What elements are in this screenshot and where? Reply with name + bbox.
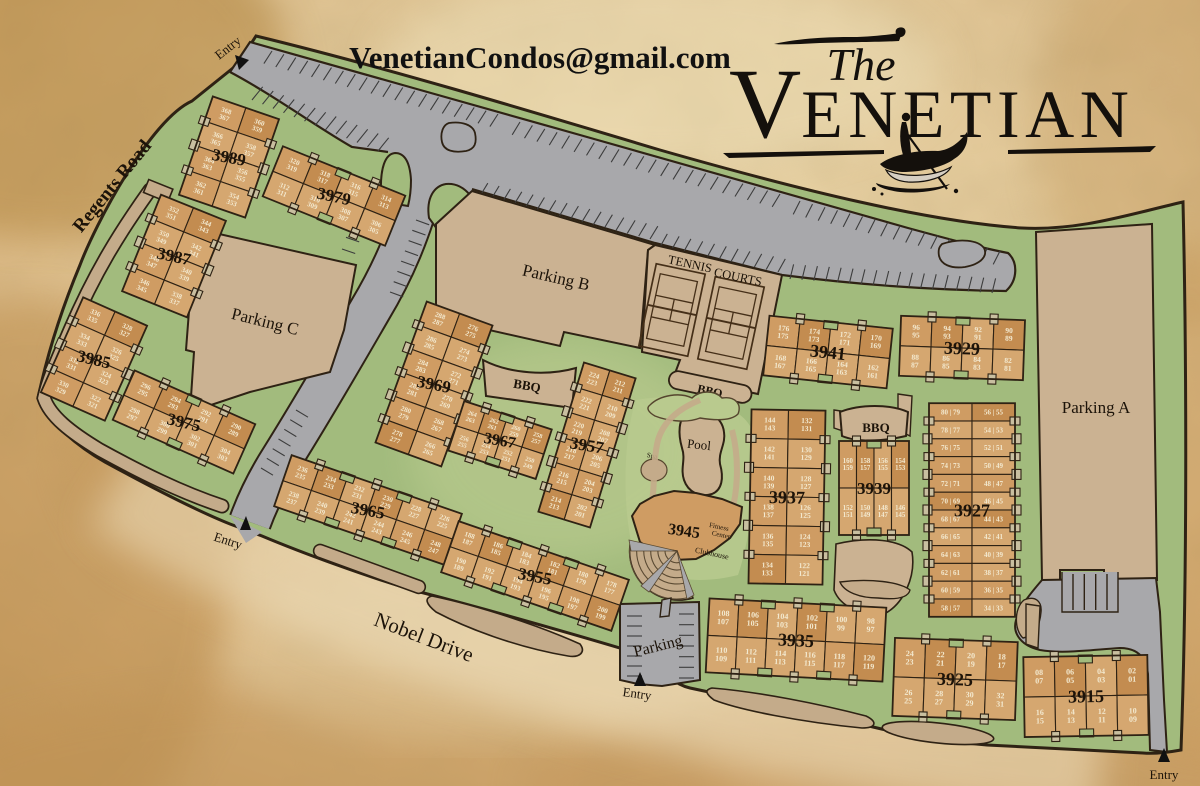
svg-text:05: 05 [1066,676,1074,685]
svg-text:153: 153 [895,465,906,472]
svg-text:Entry: Entry [1150,767,1179,782]
svg-text:137: 137 [762,510,774,519]
svg-text:52 | 51: 52 | 51 [984,444,1004,452]
svg-text:119: 119 [863,662,875,672]
svg-text:83: 83 [973,363,981,372]
svg-text:103: 103 [776,620,788,630]
svg-text:175: 175 [777,331,789,341]
svg-text:3941: 3941 [809,340,847,364]
svg-text:121: 121 [798,569,810,578]
svg-text:133: 133 [761,568,773,577]
svg-text:07: 07 [1035,676,1043,685]
svg-text:19: 19 [967,660,975,669]
svg-text:158: 158 [860,458,871,465]
svg-text:89: 89 [1005,334,1013,343]
svg-text:169: 169 [869,340,881,350]
svg-text:11: 11 [1098,715,1106,724]
svg-text:BBQ: BBQ [862,420,889,435]
svg-text:34 | 33: 34 | 33 [984,604,1004,612]
svg-text:146: 146 [895,505,906,512]
svg-text:160: 160 [843,458,854,465]
svg-text:155: 155 [878,465,889,472]
svg-text:151: 151 [843,512,854,519]
svg-text:72 | 71: 72 | 71 [941,480,961,488]
svg-text:159: 159 [843,465,854,472]
svg-text:13: 13 [1067,716,1075,725]
svg-text:36 | 35: 36 | 35 [984,587,1004,595]
svg-text:145: 145 [895,512,906,519]
svg-text:117: 117 [833,660,845,670]
svg-text:150: 150 [860,505,871,512]
svg-text:113: 113 [774,657,786,667]
svg-text:25: 25 [904,696,912,705]
svg-text:149: 149 [860,512,871,519]
svg-text:23: 23 [905,657,913,666]
svg-text:56 | 55: 56 | 55 [984,409,1004,417]
svg-text:38 | 37: 38 | 37 [984,569,1004,577]
svg-text:152: 152 [843,505,854,512]
svg-text:3925: 3925 [937,669,974,690]
svg-text:163: 163 [835,367,847,377]
svg-text:147: 147 [878,512,889,519]
svg-text:17: 17 [997,661,1005,670]
svg-text:167: 167 [774,361,786,371]
svg-text:125: 125 [799,511,811,520]
svg-text:62 | 61: 62 | 61 [941,569,961,577]
svg-text:3935: 3935 [777,629,814,651]
svg-text:Parking A: Parking A [1062,398,1131,417]
svg-text:107: 107 [717,617,729,627]
svg-text:80 | 79: 80 | 79 [941,409,961,417]
svg-text:81: 81 [1004,364,1012,373]
svg-text:03: 03 [1097,675,1105,684]
svg-text:58 | 57: 58 | 57 [941,604,961,612]
svg-text:64 | 63: 64 | 63 [941,551,961,559]
svg-text:85: 85 [942,361,950,370]
svg-text:123: 123 [799,540,811,549]
svg-text:01: 01 [1128,675,1136,684]
svg-text:66 | 65: 66 | 65 [941,533,961,541]
svg-text:3937: 3937 [769,487,805,508]
svg-text:97: 97 [866,625,874,634]
svg-text:54 | 53: 54 | 53 [984,426,1004,434]
svg-text:09: 09 [1129,715,1137,724]
svg-text:3939: 3939 [857,479,891,498]
svg-text:3929: 3929 [944,338,981,359]
svg-text:111: 111 [745,655,757,665]
svg-text:VenetianCondos@gmail.com: VenetianCondos@gmail.com [349,40,731,75]
svg-text:40 | 39: 40 | 39 [984,551,1004,559]
svg-text:101: 101 [805,622,817,632]
svg-text:99: 99 [837,623,845,632]
svg-text:143: 143 [764,423,776,432]
svg-text:154: 154 [895,458,906,465]
svg-text:78 | 77: 78 | 77 [941,426,961,434]
svg-text:129: 129 [800,453,812,462]
svg-text:Pool: Pool [686,436,712,453]
svg-text:3927: 3927 [954,500,990,520]
svg-text:95: 95 [912,330,920,339]
svg-text:105: 105 [746,618,758,628]
svg-text:131: 131 [801,424,813,433]
svg-text:60 | 59: 60 | 59 [941,587,961,595]
svg-text:157: 157 [860,465,871,472]
svg-text:29: 29 [965,698,973,707]
svg-text:50 | 49: 50 | 49 [984,462,1004,470]
svg-text:115: 115 [804,659,816,669]
svg-text:3915: 3915 [1068,686,1104,707]
svg-text:15: 15 [1036,716,1044,725]
svg-text:109: 109 [715,654,727,664]
svg-text:148: 148 [878,505,889,512]
svg-text:165: 165 [805,364,817,374]
svg-text:87: 87 [911,360,919,369]
svg-text:74 | 73: 74 | 73 [941,462,961,470]
svg-text:31: 31 [996,700,1004,709]
svg-text:27: 27 [935,697,943,706]
svg-text:42 | 41: 42 | 41 [984,533,1004,541]
svg-text:156: 156 [878,458,889,465]
svg-text:76 | 75: 76 | 75 [941,444,961,452]
svg-text:48 | 47: 48 | 47 [984,480,1004,488]
svg-text:141: 141 [763,452,775,461]
svg-text:21: 21 [936,658,944,667]
svg-text:161: 161 [866,370,878,380]
svg-text:135: 135 [762,539,774,548]
